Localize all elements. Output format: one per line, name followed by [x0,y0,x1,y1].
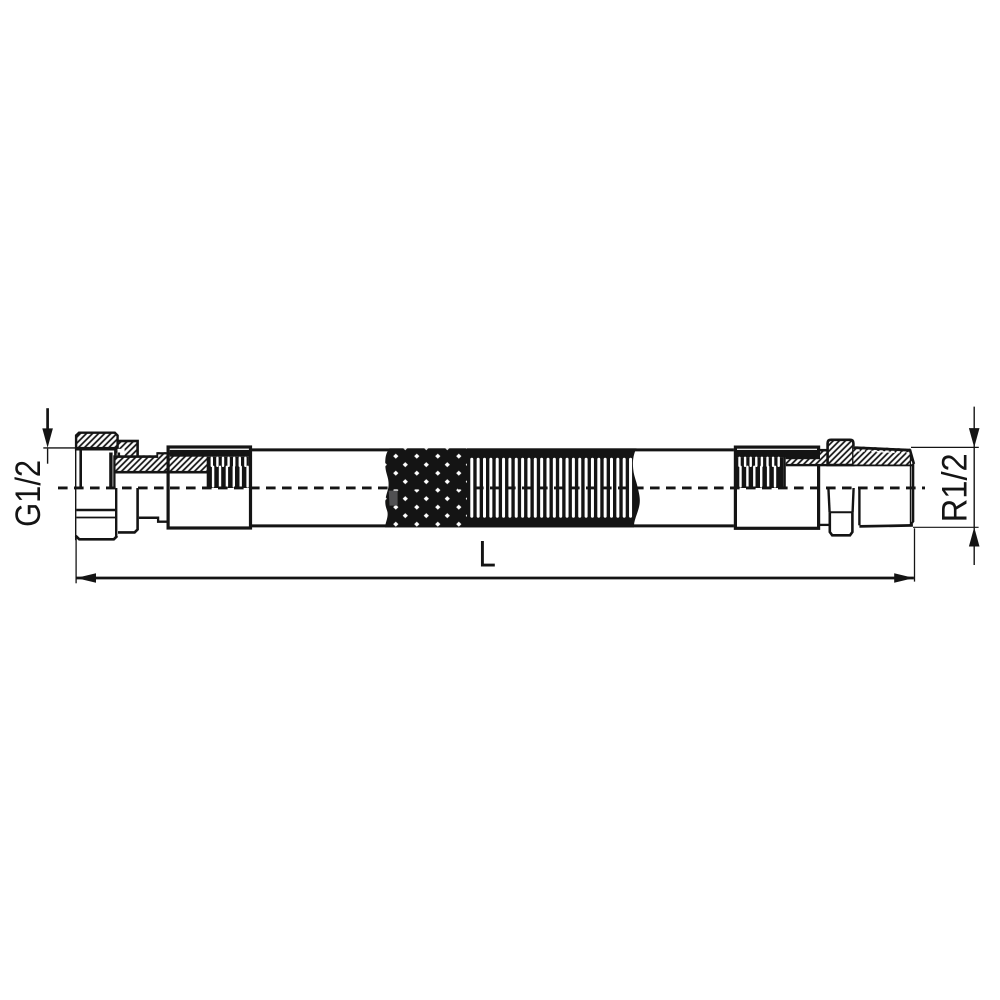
svg-text:R1/2: R1/2 [934,453,974,522]
svg-text:G1/2: G1/2 [9,460,48,527]
svg-text:L: L [478,534,495,575]
